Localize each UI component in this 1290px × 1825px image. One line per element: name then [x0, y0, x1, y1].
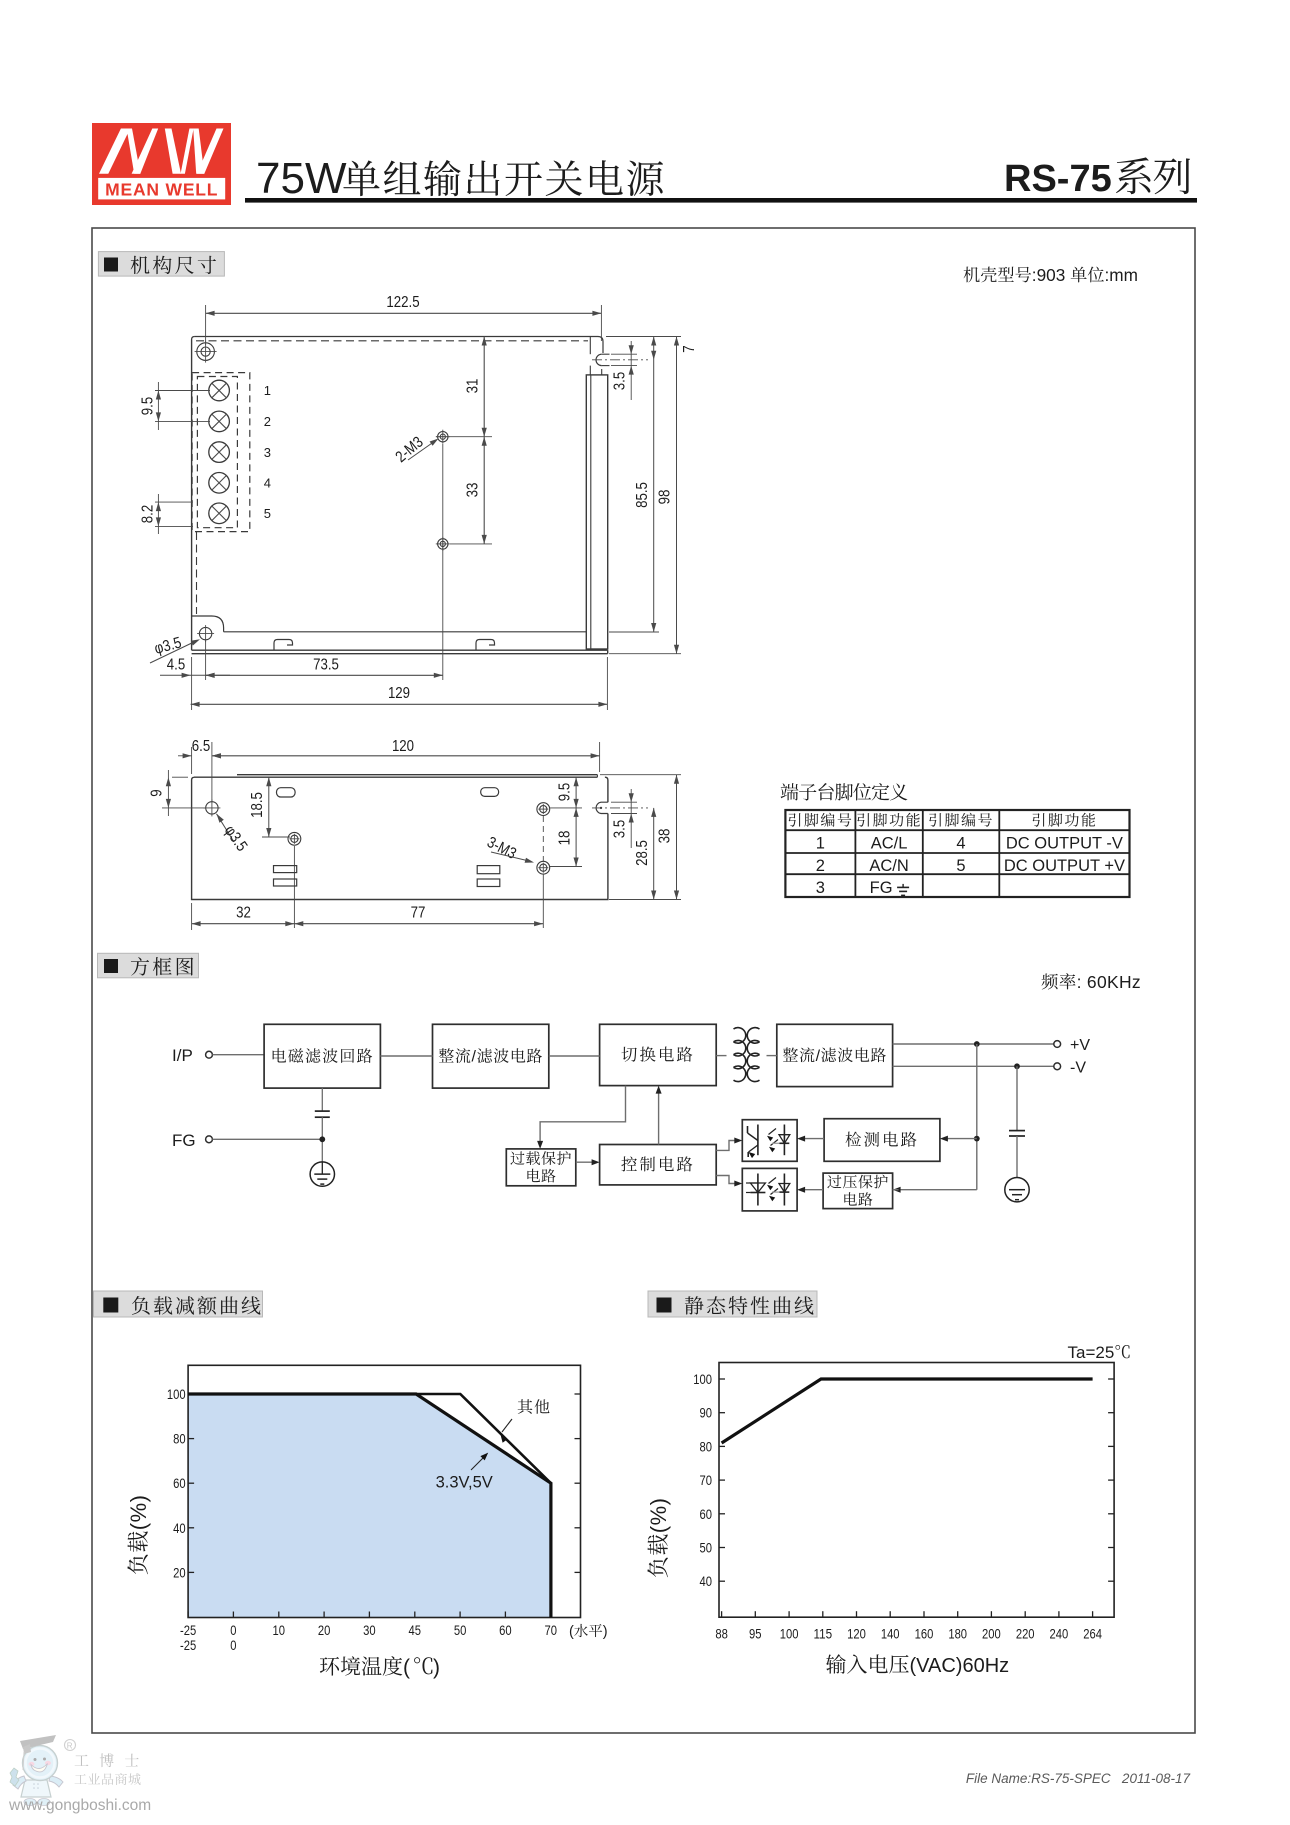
svg-text:AC/L: AC/L: [871, 835, 908, 853]
svg-text:1: 1: [264, 383, 271, 398]
svg-text:50: 50: [454, 1622, 467, 1638]
svg-text:75W: 75W: [256, 154, 347, 203]
svg-text:0: 0: [230, 1622, 236, 1638]
svg-text:+V: +V: [1070, 1037, 1090, 1054]
svg-text:100: 100: [780, 1626, 799, 1642]
svg-text:10: 10: [273, 1622, 286, 1638]
svg-text:140: 140: [881, 1626, 900, 1642]
svg-text:220: 220: [1016, 1626, 1035, 1642]
svg-text:120: 120: [392, 738, 414, 755]
svg-text:40: 40: [700, 1573, 713, 1589]
svg-text:90: 90: [700, 1405, 713, 1421]
svg-text:(%): (%): [646, 1497, 671, 1533]
svg-text:60: 60: [700, 1506, 713, 1522]
svg-text:3.3V,5V: 3.3V,5V: [436, 1474, 493, 1492]
svg-text:3: 3: [264, 445, 271, 460]
svg-text:80: 80: [700, 1438, 713, 1454]
svg-text:20: 20: [173, 1564, 186, 1580]
svg-text:6.5: 6.5: [192, 738, 211, 755]
svg-text:/: /: [816, 1048, 821, 1065]
svg-text:100: 100: [167, 1386, 186, 1402]
svg-text:50: 50: [700, 1540, 713, 1556]
svg-text:70: 70: [700, 1472, 713, 1488]
svg-text:9.5: 9.5: [140, 397, 157, 416]
svg-text:): ): [433, 1656, 440, 1679]
svg-text:180: 180: [948, 1626, 967, 1642]
svg-text:/: /: [472, 1049, 477, 1066]
svg-text:18.5: 18.5: [249, 792, 266, 818]
svg-text::903: :903: [1032, 265, 1065, 285]
svg-text:20: 20: [318, 1622, 331, 1638]
svg-text:): ): [603, 1624, 608, 1640]
svg-text:100: 100: [693, 1371, 712, 1387]
svg-text:8.2: 8.2: [140, 505, 157, 523]
svg-text:(%): (%): [126, 1494, 151, 1530]
svg-text:18: 18: [557, 830, 574, 845]
svg-text:122.5: 122.5: [386, 294, 419, 311]
svg-text:1: 1: [816, 835, 825, 853]
svg-text:264: 264: [1083, 1626, 1102, 1642]
svg-text:120: 120: [847, 1626, 866, 1642]
svg-text:28.5: 28.5: [634, 840, 651, 866]
svg-text:5: 5: [956, 857, 965, 875]
svg-text:73.5: 73.5: [313, 657, 339, 674]
svg-text:3.5: 3.5: [612, 820, 629, 839]
svg-text:45: 45: [409, 1622, 422, 1638]
svg-text:4: 4: [956, 835, 965, 853]
svg-text:200: 200: [982, 1626, 1001, 1642]
svg-text:RS-75: RS-75: [1004, 158, 1112, 200]
svg-text:(: (: [403, 1656, 410, 1679]
svg-text:40: 40: [173, 1520, 186, 1536]
svg-text:-25: -25: [180, 1622, 196, 1638]
svg-text:I/P: I/P: [172, 1046, 193, 1065]
svg-text:95: 95: [749, 1626, 762, 1642]
svg-text:2: 2: [816, 857, 825, 875]
svg-text:DC OUTPUT -V: DC OUTPUT -V: [1006, 835, 1123, 853]
svg-text:4: 4: [264, 476, 271, 491]
svg-text:R: R: [67, 1742, 73, 1751]
svg-text:98: 98: [657, 489, 674, 504]
svg-text:2: 2: [264, 414, 271, 429]
svg-text:FG: FG: [172, 1131, 196, 1150]
svg-text:(: (: [569, 1624, 574, 1640]
svg-text:-25: -25: [180, 1637, 196, 1653]
svg-text:File Name:RS-75-SPEC 2011-08: File Name:RS-75-SPEC 2011-08-17: [966, 1771, 1191, 1786]
svg-text:9.5: 9.5: [557, 783, 574, 802]
svg-text:9: 9: [149, 789, 166, 797]
svg-text:3: 3: [816, 879, 825, 897]
svg-text:60: 60: [499, 1622, 512, 1638]
svg-text::mm: :mm: [1105, 265, 1138, 285]
svg-text:5: 5: [264, 506, 271, 521]
svg-text:: 60KHz: : 60KHz: [1077, 972, 1141, 992]
svg-text:129: 129: [388, 685, 410, 702]
svg-text:85.5: 85.5: [634, 482, 651, 508]
svg-text:240: 240: [1050, 1626, 1069, 1642]
svg-text:30: 30: [363, 1622, 376, 1638]
svg-text:4.5: 4.5: [167, 657, 186, 674]
svg-text:(VAC)60Hz: (VAC)60Hz: [910, 1655, 1010, 1677]
svg-text:0: 0: [230, 1637, 236, 1653]
svg-text:FG: FG: [870, 879, 893, 897]
svg-text:33: 33: [465, 482, 482, 497]
svg-text:88: 88: [715, 1626, 728, 1642]
svg-text:Ta=25: Ta=25: [1068, 1343, 1115, 1362]
svg-text:60: 60: [173, 1475, 186, 1491]
svg-text:38: 38: [657, 828, 674, 843]
svg-text:32: 32: [236, 905, 251, 922]
svg-text:70: 70: [544, 1622, 557, 1638]
svg-text:MEAN WELL: MEAN WELL: [105, 180, 218, 200]
svg-text:www.gongboshi.com: www.gongboshi.com: [8, 1797, 151, 1814]
svg-text:7: 7: [681, 345, 698, 352]
svg-text:-V: -V: [1070, 1059, 1086, 1076]
svg-text:3.5: 3.5: [612, 372, 629, 391]
svg-text:DC OUTPUT +V: DC OUTPUT +V: [1004, 857, 1125, 875]
svg-text:31: 31: [465, 378, 482, 393]
svg-text:77: 77: [411, 905, 426, 922]
svg-text:160: 160: [915, 1626, 934, 1642]
svg-text:AC/N: AC/N: [869, 857, 908, 875]
svg-text:80: 80: [173, 1431, 186, 1447]
svg-text:115: 115: [813, 1626, 832, 1642]
